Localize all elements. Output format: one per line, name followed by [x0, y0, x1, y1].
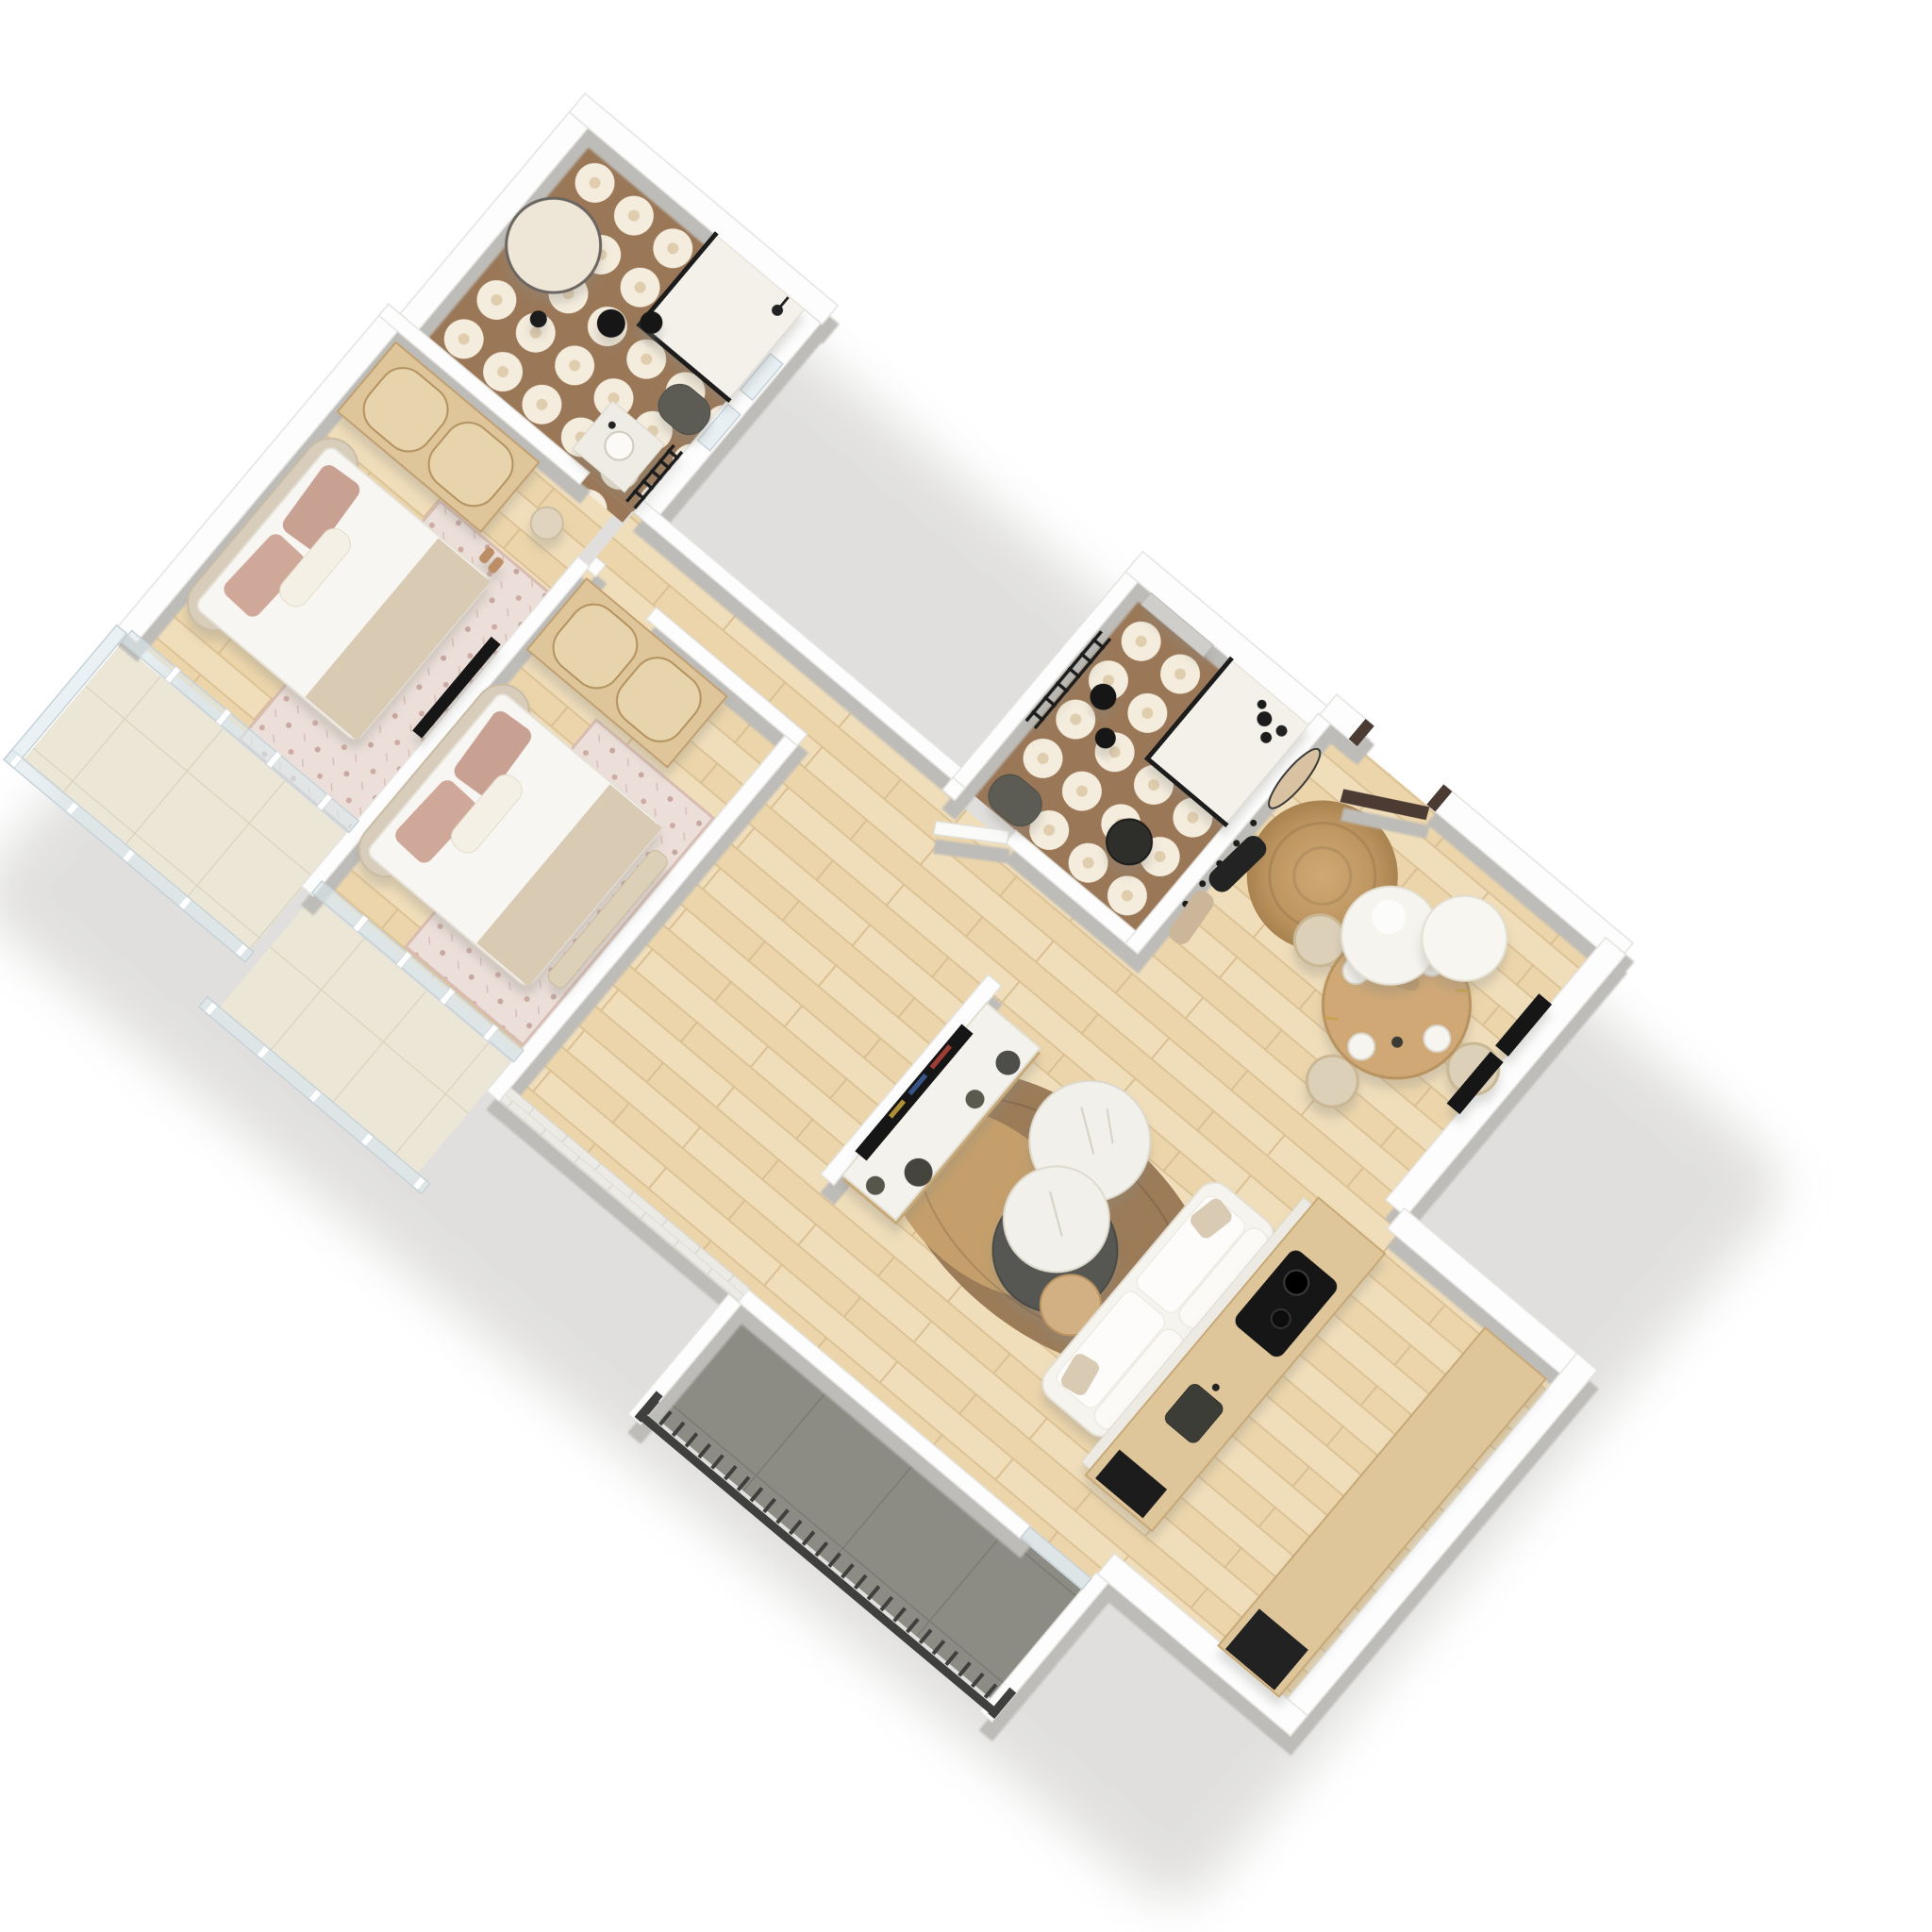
floors — [0, 95, 1785, 1845]
floorplan-render — [0, 0, 1932, 1932]
floorplan-stage: 3D isometric floor plan render of a two-… — [0, 0, 1932, 1932]
